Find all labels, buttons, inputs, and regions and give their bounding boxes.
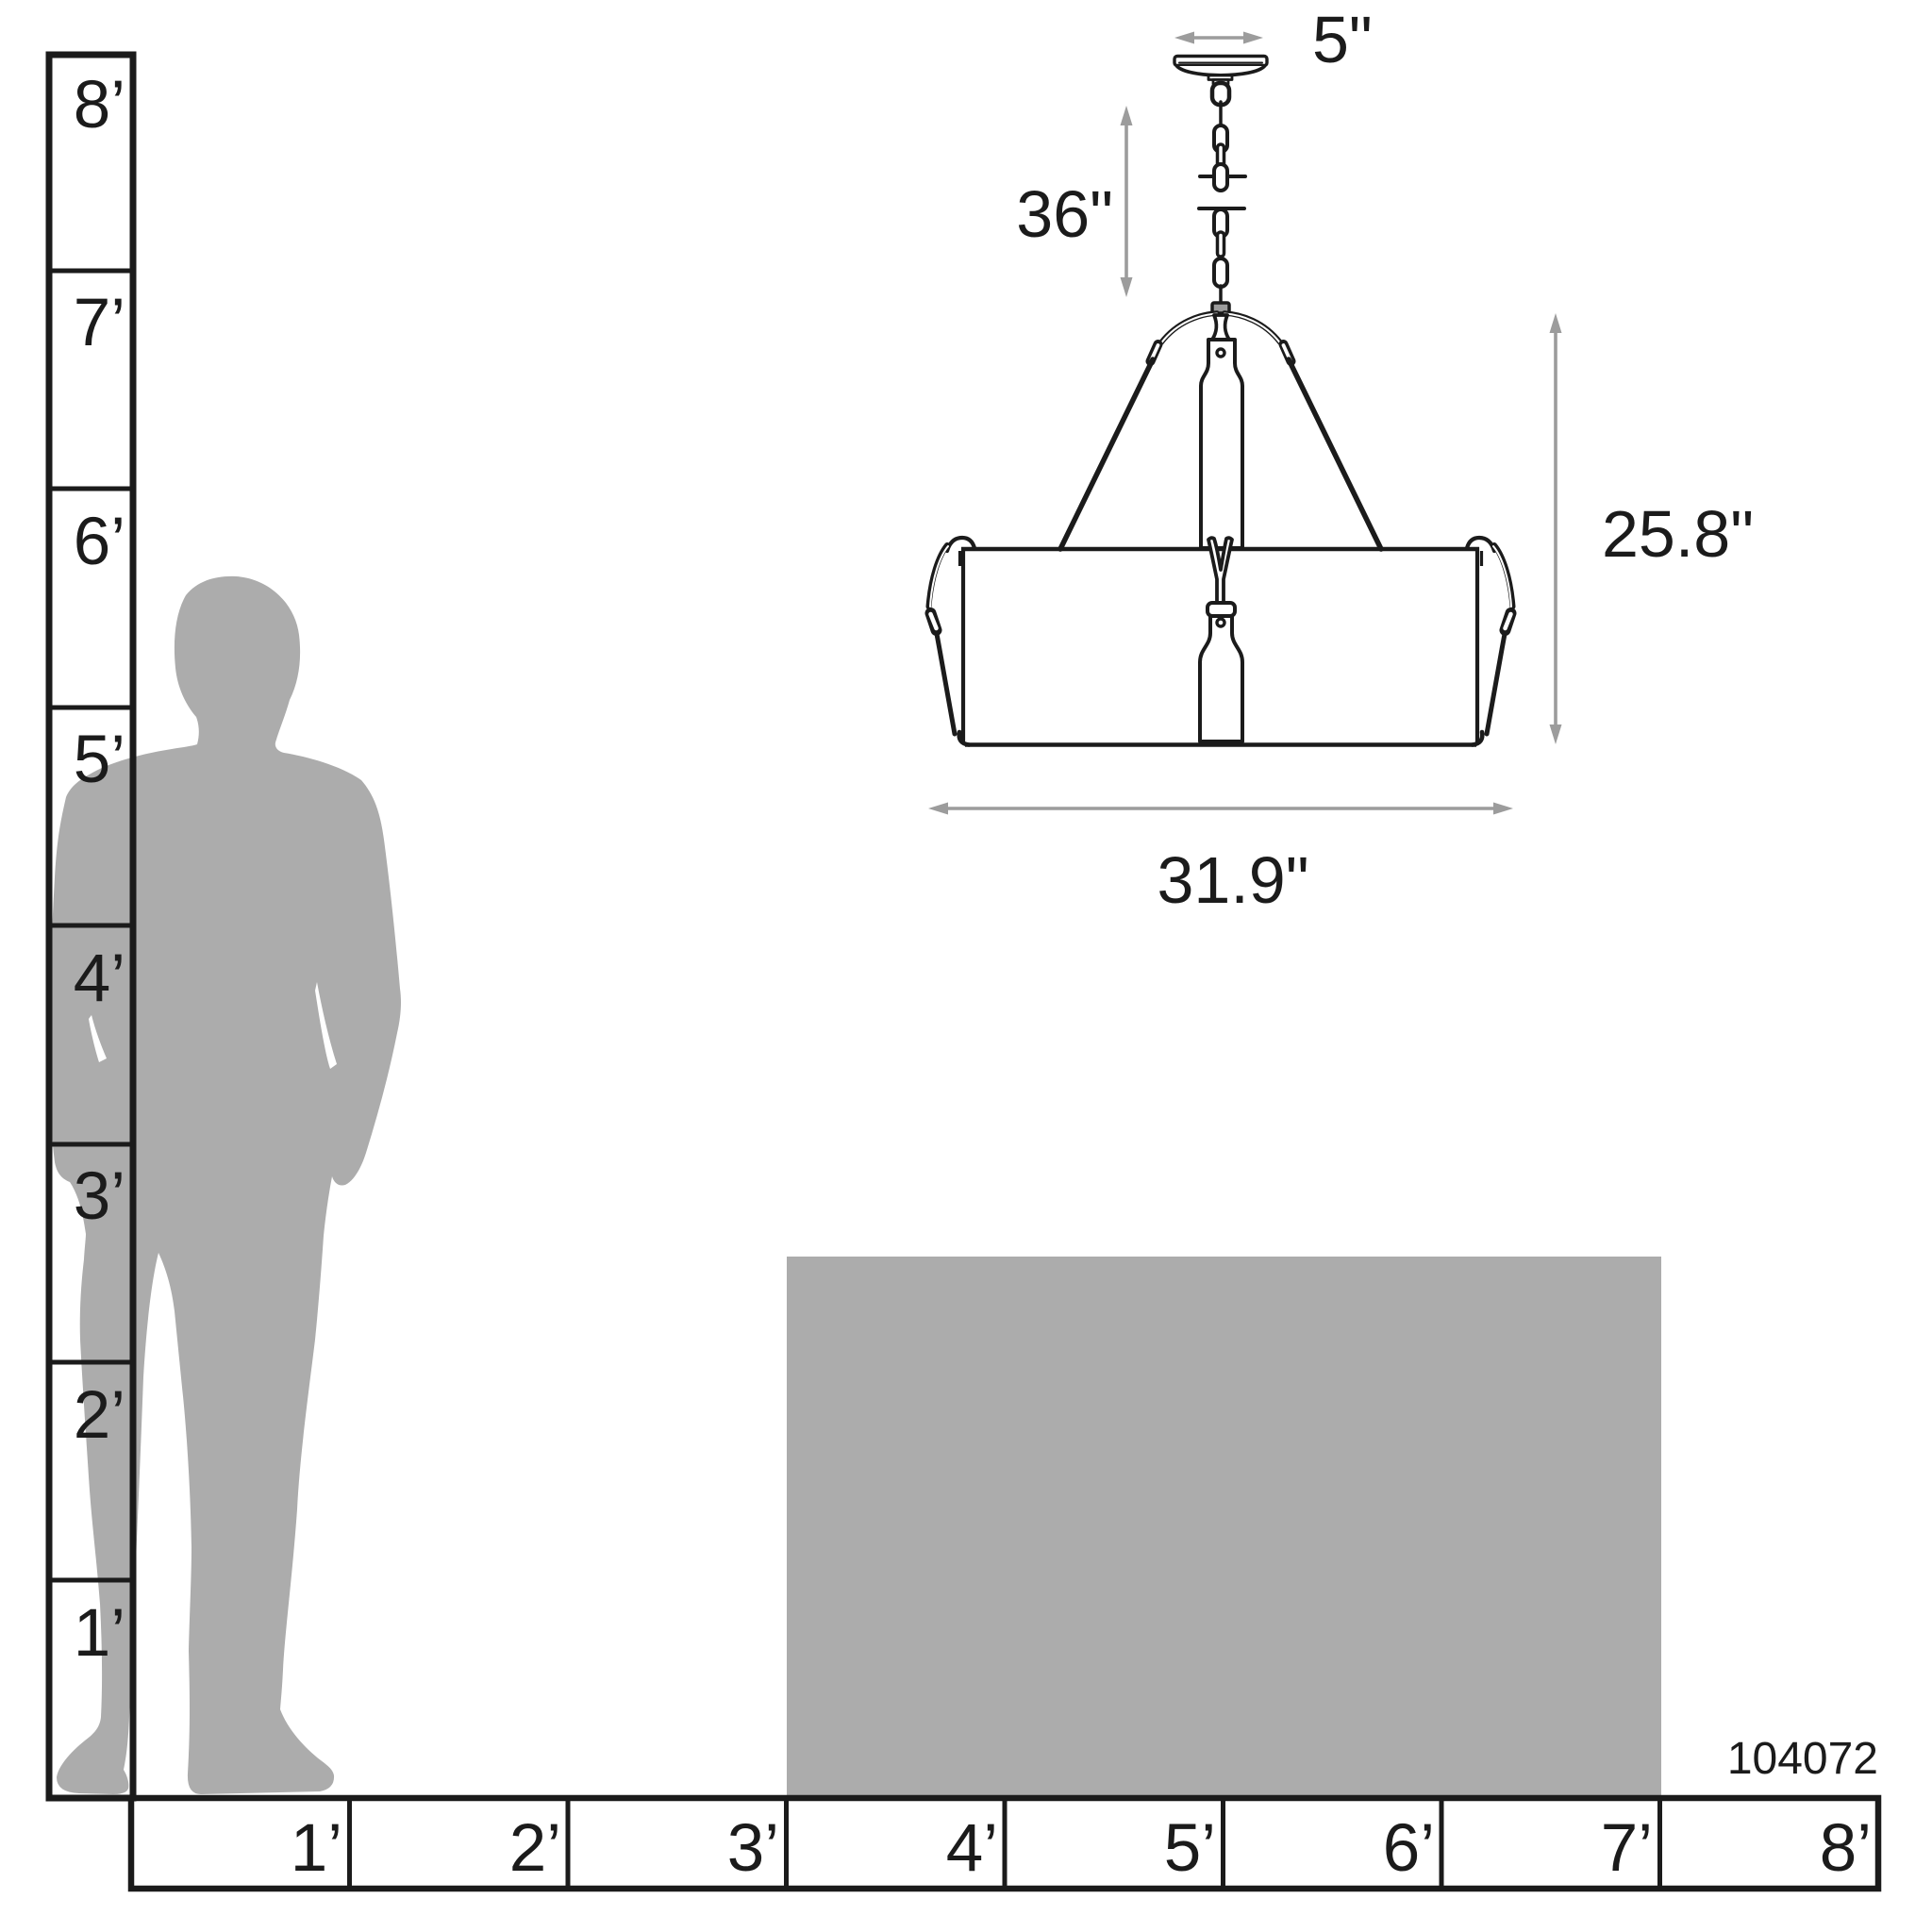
svg-text:7’: 7’ (1601, 1811, 1653, 1886)
svg-text:25.8": 25.8" (1602, 497, 1754, 571)
svg-text:2’: 2’ (74, 1378, 125, 1453)
svg-text:5’: 5’ (1164, 1811, 1216, 1886)
svg-text:8’: 8’ (74, 68, 125, 142)
svg-text:3’: 3’ (727, 1811, 779, 1886)
svg-text:4’: 4’ (74, 941, 125, 1016)
svg-text:1’: 1’ (74, 1596, 125, 1671)
svg-text:7’: 7’ (74, 286, 125, 360)
svg-text:6’: 6’ (1383, 1811, 1435, 1886)
svg-text:8’: 8’ (1820, 1811, 1872, 1886)
svg-text:5’: 5’ (74, 723, 125, 797)
svg-text:6’: 6’ (74, 505, 125, 579)
svg-text:31.9": 31.9" (1157, 843, 1308, 917)
svg-text:5": 5" (1312, 3, 1373, 76)
svg-text:3’: 3’ (74, 1159, 125, 1234)
svg-text:104072: 104072 (1727, 1734, 1878, 1784)
svg-text:4’: 4’ (946, 1811, 998, 1886)
svg-text:1’: 1’ (291, 1811, 342, 1886)
svg-text:2’: 2’ (509, 1811, 561, 1886)
svg-text:36": 36" (1016, 177, 1113, 251)
